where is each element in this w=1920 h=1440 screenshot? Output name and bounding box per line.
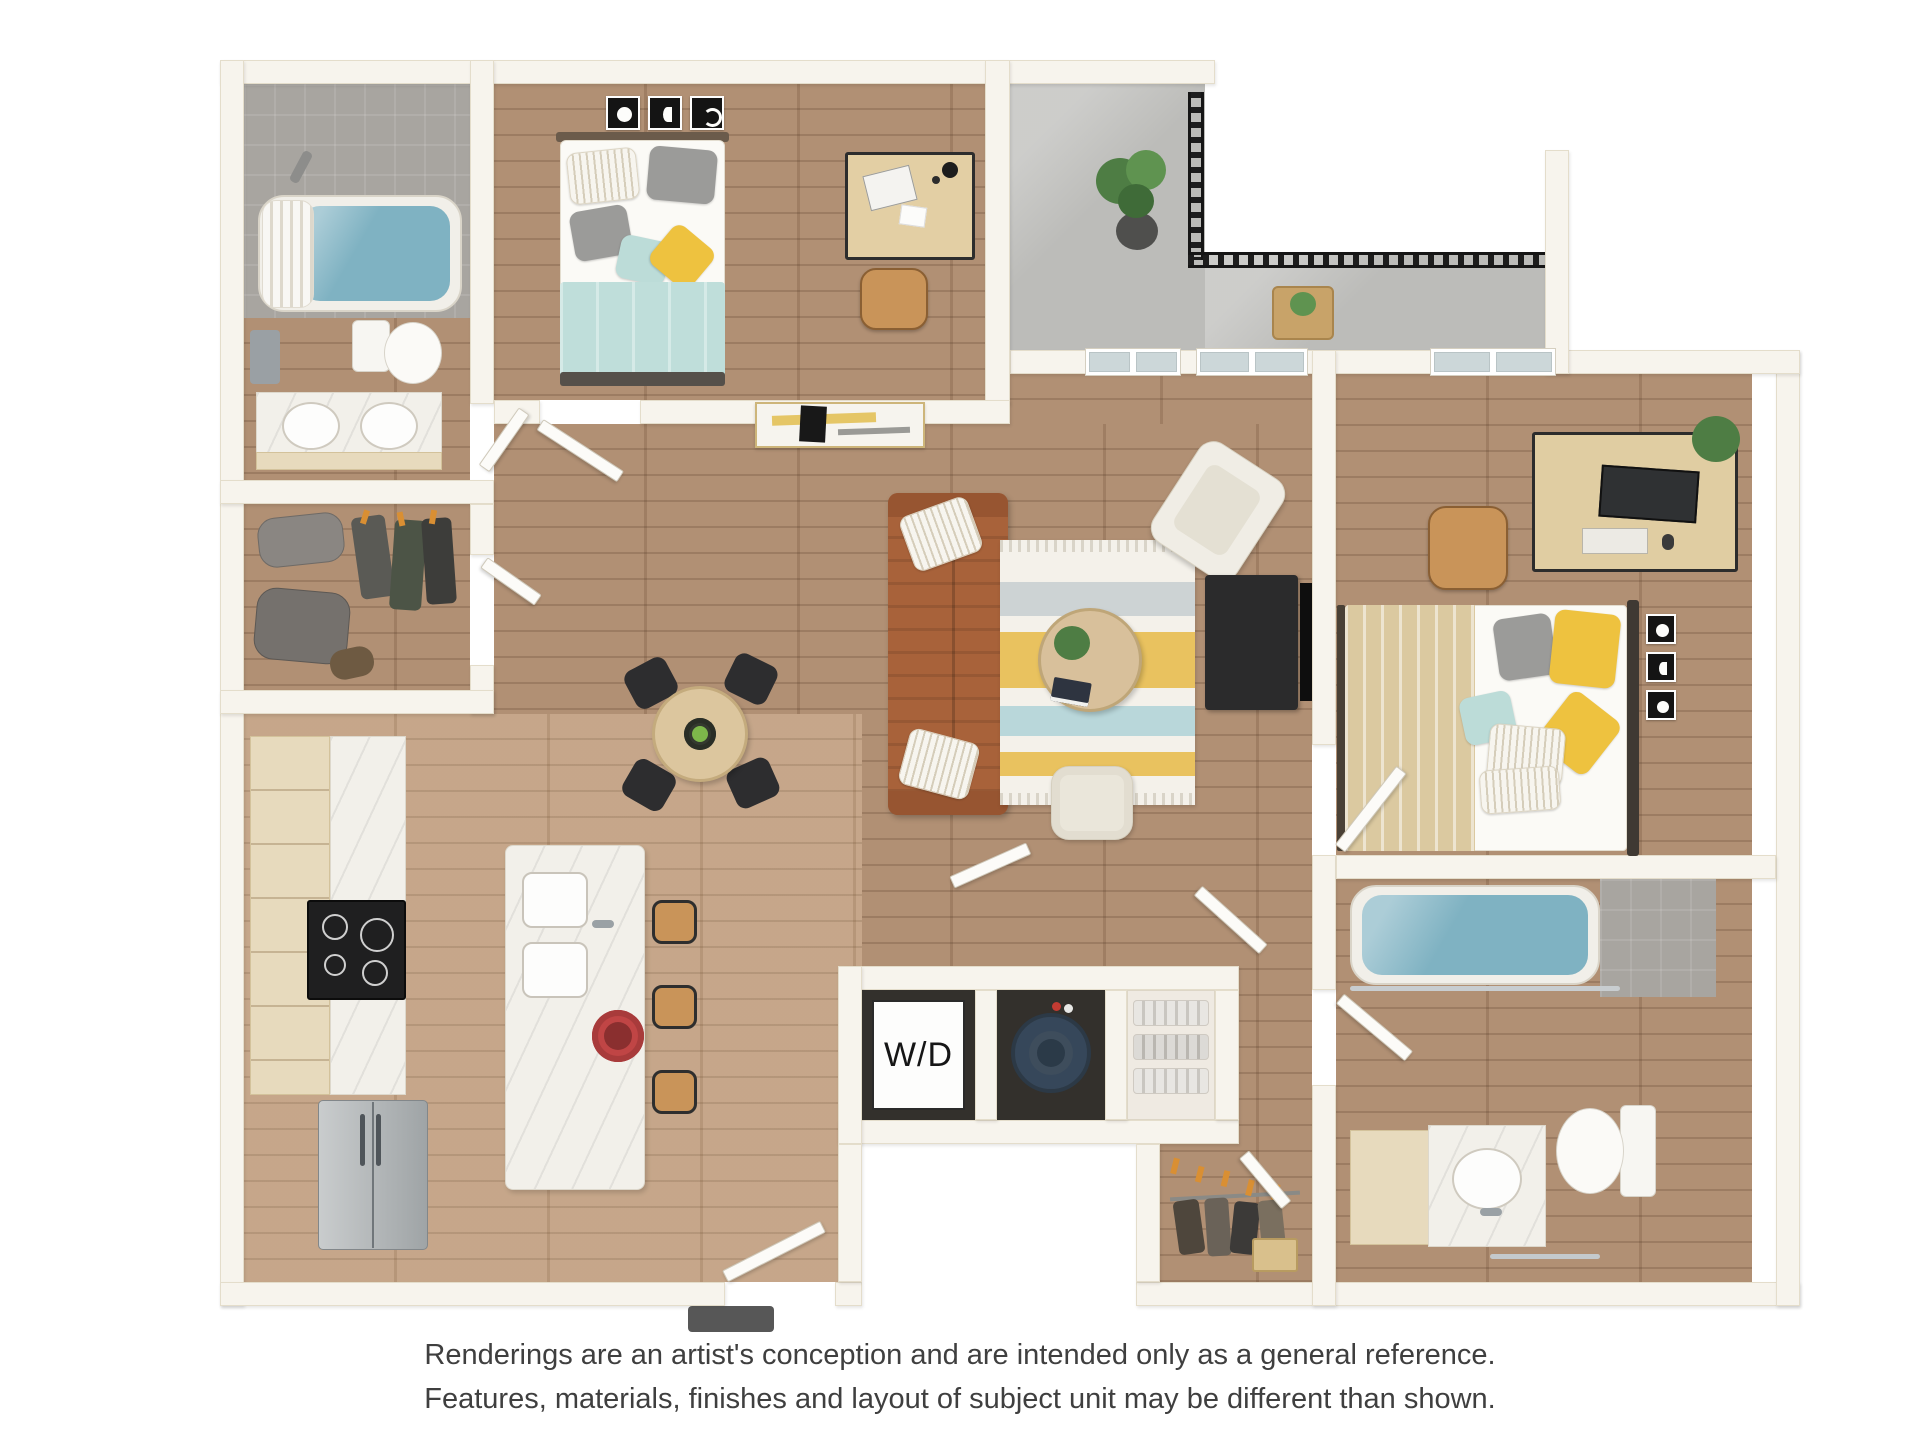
bed1-pillow-white xyxy=(565,146,640,205)
wall-closet1-south xyxy=(220,690,494,714)
wall-notch-west xyxy=(838,1144,862,1282)
bed2-art-frame2 xyxy=(1646,652,1676,682)
desk1-chair xyxy=(860,268,928,330)
wall-exterior-bottom-b xyxy=(835,1282,862,1306)
bed1-art-frame2 xyxy=(648,96,682,130)
bathtub1-water xyxy=(300,206,450,301)
wall-exterior-left xyxy=(220,60,244,1306)
bed1-blanket xyxy=(560,282,725,382)
bar-stool1 xyxy=(652,900,697,944)
wall-bedroom2-south xyxy=(1336,855,1776,879)
linen-towel3 xyxy=(1133,1068,1209,1094)
wall-exterior-bottom-c xyxy=(1136,1282,1800,1306)
desk1-notebook-icon xyxy=(899,204,928,227)
walkin-garment2 xyxy=(1204,1197,1232,1257)
balcony-railing-vertical xyxy=(1188,92,1204,260)
tv-screen xyxy=(1300,583,1312,701)
stove-burner4-icon xyxy=(362,960,388,986)
bath2-towel-bar-icon xyxy=(1490,1254,1600,1259)
vanity1-sink-left xyxy=(282,402,340,450)
living-window xyxy=(1196,348,1308,376)
island-sink1 xyxy=(522,872,588,928)
stove-cooktop xyxy=(307,900,406,1000)
wall-exterior-right xyxy=(1776,350,1800,1306)
linen-towel2 xyxy=(1133,1034,1209,1060)
living-art-black-stroke xyxy=(799,405,827,442)
floorplan-rendering: W/D xyxy=(0,0,1920,1440)
bed2-pillow-white2 xyxy=(1479,765,1562,814)
island-sink2 xyxy=(522,942,588,998)
closet1-duffel1 xyxy=(256,511,347,570)
wall-balcony-west xyxy=(985,60,1010,404)
bed2-pillow-yellow1 xyxy=(1548,609,1621,689)
vanity2-sink xyxy=(1452,1148,1522,1210)
wall-wd-west xyxy=(838,966,862,1144)
bar-stool2 xyxy=(652,985,697,1029)
balcony-plant-leaves3-icon xyxy=(1118,184,1154,218)
bed1-foot-bench xyxy=(560,372,725,386)
wall-living-bed2-c xyxy=(1312,1085,1336,1306)
balcony-railing-horizontal xyxy=(1188,252,1545,268)
wall-closets-north xyxy=(843,966,1239,990)
wall-living-bed2-a xyxy=(1312,350,1336,745)
bed2-headboard xyxy=(1627,600,1639,856)
disclaimer-line2: Features, materials, finishes and layout… xyxy=(0,1382,1920,1416)
balcony-floor xyxy=(1010,84,1205,350)
bedroom2-window xyxy=(1430,348,1556,376)
living-area-floor-upper xyxy=(1010,374,1312,424)
water-heater-core-icon xyxy=(1037,1039,1065,1067)
bathtub2-water xyxy=(1362,895,1588,975)
toilet2-tank xyxy=(1620,1105,1656,1197)
vanity1-sink-right xyxy=(360,402,418,450)
bed2-pillow-gray xyxy=(1492,612,1558,681)
bed2-frame-foot xyxy=(1337,605,1345,851)
desk2-chair xyxy=(1428,506,1508,590)
wall-living-bed2-b xyxy=(1312,855,1336,990)
bar-stool3 xyxy=(652,1070,697,1114)
stove-burner2-icon xyxy=(360,918,394,952)
wall-niche-stub2 xyxy=(1105,990,1127,1120)
coffee-table-plant-icon xyxy=(1054,626,1090,660)
washer-dryer-unit: W/D xyxy=(872,1000,965,1110)
wall-bath1-east xyxy=(470,60,494,404)
desk2-monitor-icon xyxy=(1598,465,1699,524)
bed1-art-frame1 xyxy=(606,96,640,130)
wall-niche-stub1 xyxy=(975,990,997,1120)
wall-balcony-stub xyxy=(1545,150,1569,374)
bath2-shower-tile xyxy=(1600,879,1716,997)
balcony-table-plant-icon xyxy=(1290,292,1316,316)
desk1-lamp-icon xyxy=(942,162,958,178)
island-apple-bowl xyxy=(592,1010,644,1062)
bed1-art-frame3 xyxy=(690,96,724,130)
vanity2-faucet-icon xyxy=(1480,1208,1502,1216)
stove-burner3-icon xyxy=(324,954,346,976)
living-balcony-door xyxy=(1085,348,1181,376)
stove-burner1-icon xyxy=(322,914,348,940)
tv-console xyxy=(1205,575,1298,710)
wall-bath1-south xyxy=(220,480,494,504)
bed1-pillow-gray1 xyxy=(646,145,718,205)
ottoman xyxy=(1051,766,1133,840)
bed2-art-frame3 xyxy=(1646,690,1676,720)
entry-exterior-notch xyxy=(862,1144,1136,1306)
front-doormat xyxy=(688,1306,774,1332)
toilet2-bowl xyxy=(1556,1108,1624,1194)
shower-curtain xyxy=(262,200,314,308)
water-heater-valve-icon xyxy=(1052,1002,1061,1011)
bath2-shower-rod-icon xyxy=(1350,986,1620,991)
refrigerator-door-split xyxy=(372,1102,374,1248)
island-faucet-icon xyxy=(592,920,614,928)
bed2-art-frame1 xyxy=(1646,614,1676,644)
desk2-plant-icon xyxy=(1692,416,1740,462)
vanity1-cabinet-edge xyxy=(256,452,442,470)
washer-dryer-label: W/D xyxy=(884,1036,953,1075)
desk2-mouse-icon xyxy=(1662,534,1674,550)
closet1-garment3 xyxy=(421,517,457,605)
wall-linen-east xyxy=(1215,990,1239,1120)
wall-closet1-east-a xyxy=(470,504,494,555)
walkin-storage-box xyxy=(1252,1238,1298,1272)
toilet1-bowl xyxy=(384,322,442,384)
refrigerator-handles-icon xyxy=(360,1114,365,1166)
wall-closets-south xyxy=(838,1120,1239,1144)
dining-apples-icon xyxy=(692,726,708,742)
wall-walkin-west xyxy=(1136,1144,1160,1282)
wall-exterior-top xyxy=(220,60,1215,84)
towel1 xyxy=(250,330,280,384)
wall-exterior-bottom-a xyxy=(220,1282,725,1306)
disclaimer-line1: Renderings are an artist's conception an… xyxy=(0,1338,1920,1372)
linen-towel1 xyxy=(1133,1000,1209,1026)
desk2-keyboard-icon xyxy=(1582,528,1648,554)
